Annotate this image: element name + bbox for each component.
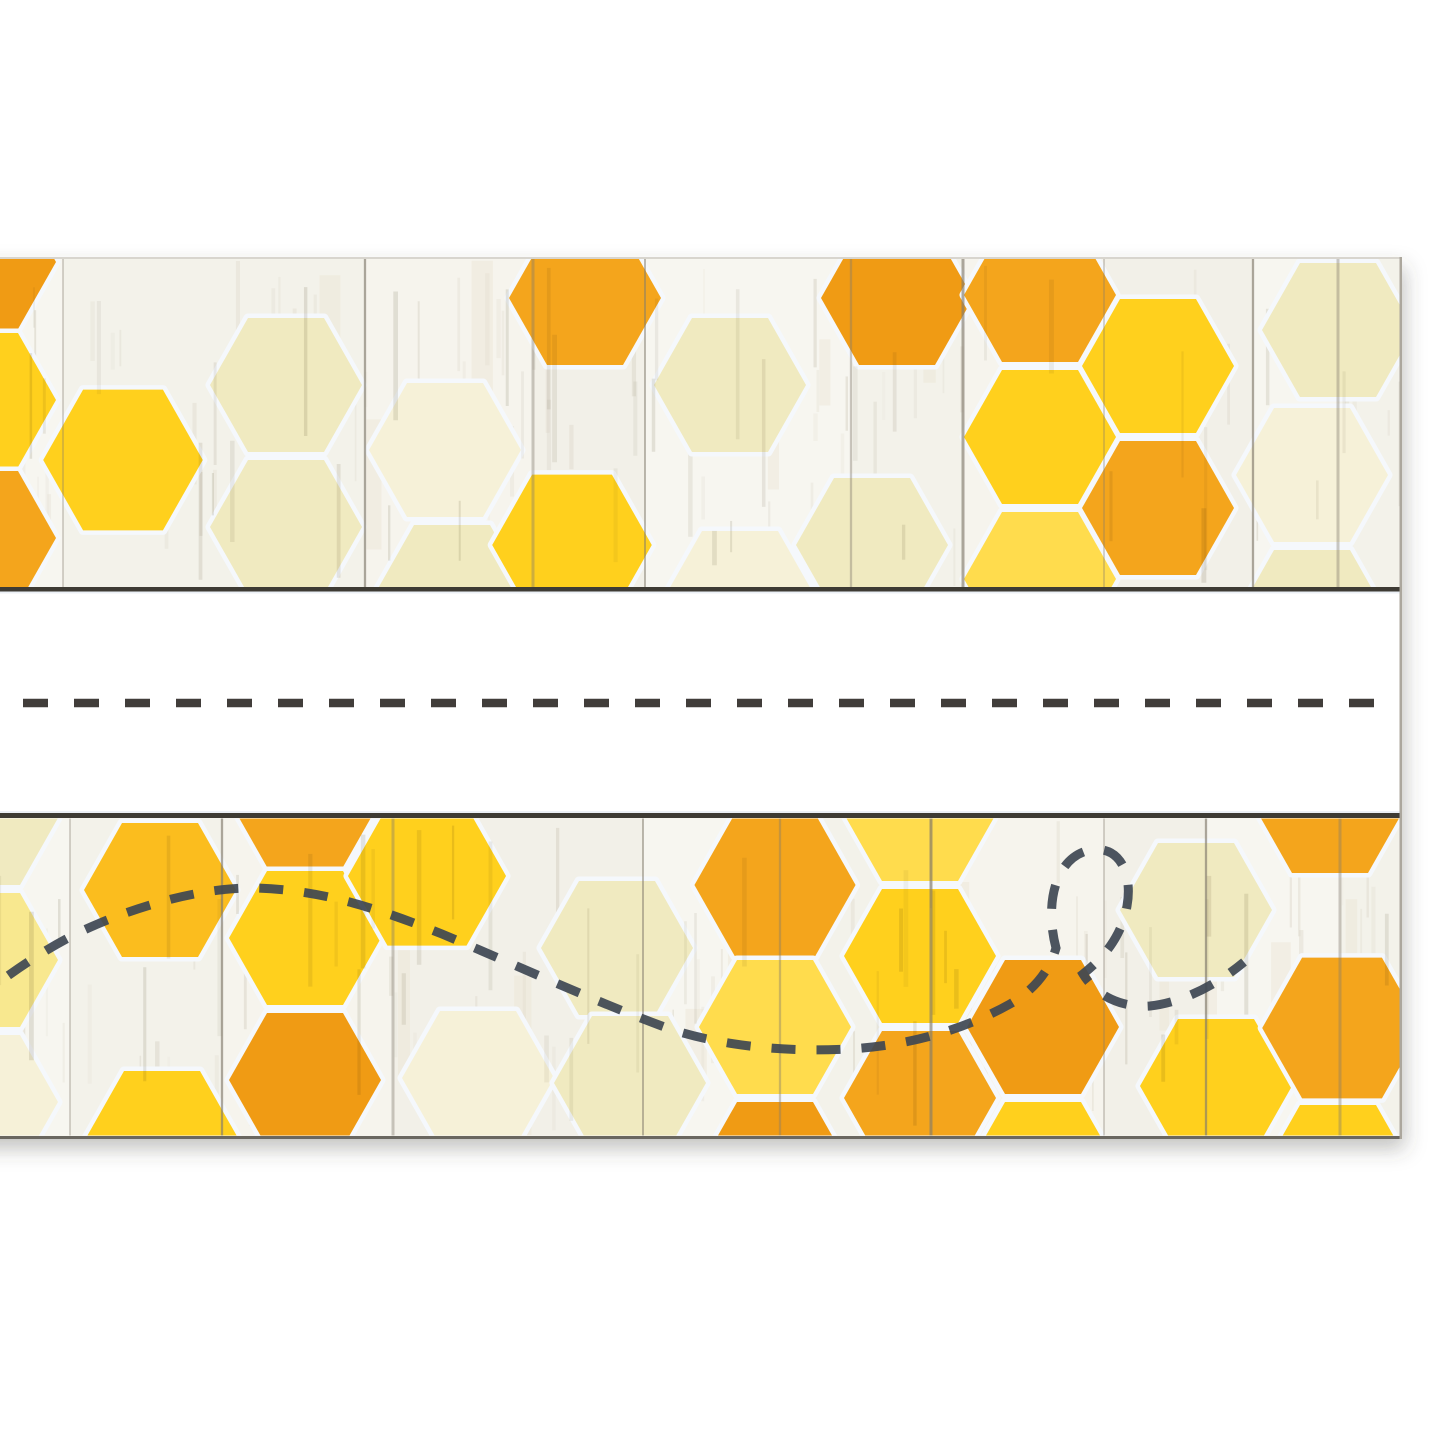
honeycomb-hexagon — [1082, 299, 1234, 433]
honeycomb-hexagon — [541, 881, 693, 1015]
strip-sheen — [0, 811, 1402, 813]
honeycomb-hexagon — [699, 960, 851, 1094]
honeycomb-hexagon — [369, 383, 521, 517]
honeycomb-hexagon — [1082, 441, 1234, 575]
honeycomb-hexagon — [844, 889, 996, 1023]
honeycomb-hexagon — [1262, 958, 1422, 1099]
card-right-edge — [1400, 257, 1403, 1139]
honeycomb-hexagon — [694, 814, 855, 956]
strip-sheen — [0, 592, 1402, 594]
honeycomb-hexagon — [1120, 843, 1272, 977]
honeycomb-hexagon — [43, 390, 203, 531]
card-top-edge — [0, 257, 1402, 259]
name-plate-card-content — [0, 195, 1422, 1239]
honeycomb-hexagon — [402, 1011, 554, 1145]
honeycomb-hexagon — [84, 823, 236, 957]
product-photo — [0, 0, 1445, 1445]
honeycomb-hexagon — [654, 318, 806, 452]
honeycomb-hexagon — [210, 318, 362, 452]
separator-bar — [0, 587, 1402, 592]
card-bottom-edge — [0, 1136, 1402, 1139]
honeycomb-hexagon — [1236, 408, 1388, 542]
name-plate-photo — [0, 0, 1445, 1445]
separator-bar — [0, 813, 1402, 818]
